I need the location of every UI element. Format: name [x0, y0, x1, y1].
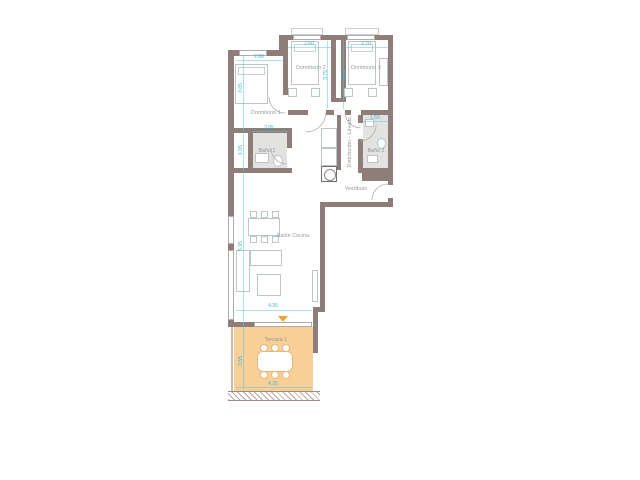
dim-dorm3-width: 2.70: [361, 41, 371, 47]
room-label-bano1: Baño 1: [258, 148, 275, 154]
dim-line-dorm3-width: [346, 47, 388, 48]
room-label-terraza: Terraza 1: [265, 337, 288, 343]
room-label-distribuidor: Distribuidor - Lavado: [347, 117, 353, 167]
dim-dorm3-height: 3.75: [341, 70, 347, 80]
dim-line-dorm1-width: [236, 60, 284, 61]
dim-line-bath2-width: [363, 121, 389, 122]
dim-dorm2-height: 3.75: [323, 70, 329, 80]
dim-salon-height: 5.95: [238, 241, 244, 251]
floor-plan: 2.80 3.65 2.60 3.75 2.70 3.75 2.05 1.65 …: [0, 0, 640, 480]
dim-line-bath1-width: [252, 131, 288, 132]
dim-bath2-width: 1.55: [370, 115, 380, 121]
dim-dorm1-width: 2.80: [254, 54, 264, 60]
room-label-dormitorio3: Dormitorio 3: [351, 65, 381, 71]
dim-terrace-height: 3.55: [238, 356, 244, 366]
dim-dorm1-height: 3.65: [238, 83, 244, 93]
dim-terrace-width: 4.25: [268, 381, 278, 387]
dim-salon-width: 4.35: [268, 303, 278, 309]
dim-line-vertical-left: [243, 55, 244, 390]
dim-line-terrace-width: [236, 387, 312, 388]
room-label-salon: Salón Cocina: [277, 233, 309, 239]
door-arc-dorm2: [306, 112, 326, 132]
door-arc-entrance: [372, 184, 388, 200]
room-label-bano2: Baño 2: [367, 148, 384, 154]
dim-bath1-width: 2.05: [264, 125, 274, 131]
room-label-dormitorio1: Dormitorio 1: [251, 110, 281, 116]
room-label-vestibulo: Vestíbulo: [345, 186, 367, 192]
door-arc-bath2: [360, 125, 376, 141]
dim-bath1-height: 1.65: [238, 145, 244, 155]
dim-line-salon-width: [236, 310, 312, 311]
door-arcs: [0, 0, 640, 480]
dim-dorm2-width: 2.60: [304, 41, 314, 47]
room-label-dormitorio2: Dormitorio 2: [296, 65, 326, 71]
dim-line-dorm2-width: [288, 47, 331, 48]
